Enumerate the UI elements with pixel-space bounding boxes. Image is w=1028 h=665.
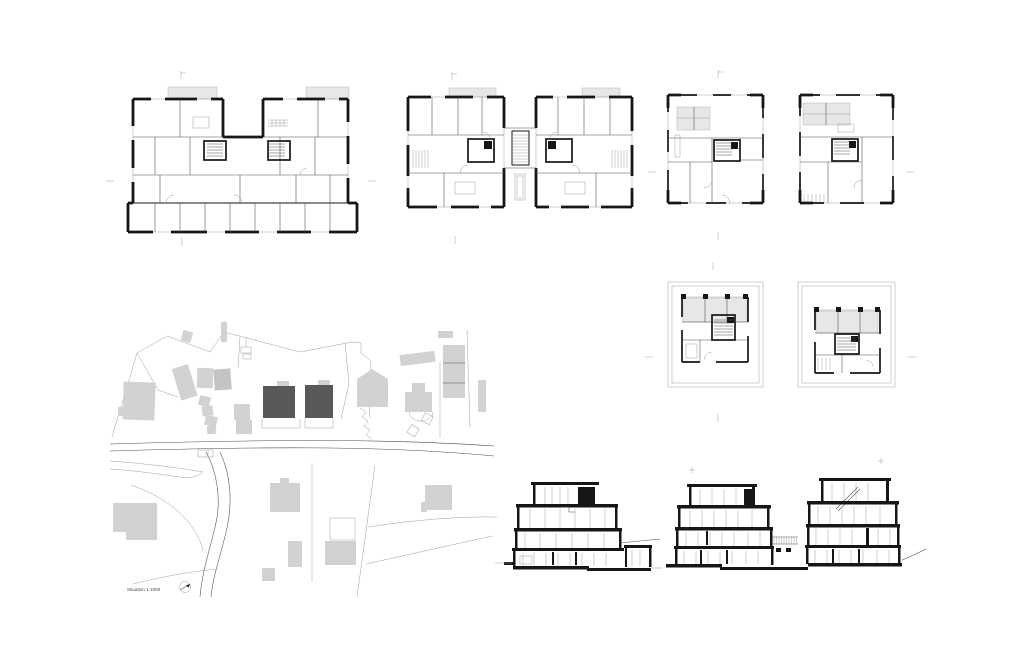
section-b [666,484,808,570]
situation-caption: Situation 1:1000 [127,587,161,592]
plan-ground-floor [128,87,357,232]
roof-terrace [677,107,710,130]
section-link [772,537,798,552]
plan-upper-floor [408,88,632,207]
plan-top-floor-left [668,95,763,203]
section-markers [106,70,916,473]
north-arrow [180,582,191,593]
parcel-lines [112,321,497,597]
plan-attic-left [668,282,763,387]
vehicle-outline [198,450,213,457]
section-c [805,478,926,567]
roof-canopy [306,87,349,99]
site-plan: Situation 1:1000 [110,321,497,597]
plan-attic-right [798,282,895,387]
stair-core-link [504,128,536,200]
roof-canopy [168,87,217,99]
plan-top-floor-right [800,95,893,203]
project-building-a [263,381,295,418]
roof-terrace [816,311,878,333]
roof-terrace [683,298,747,322]
drawing-sheet: Situation 1:1000 [0,0,1028,665]
section-a [495,482,662,571]
project-building-b [305,380,333,418]
drawing-canvas: Situation 1:1000 [0,0,1028,665]
